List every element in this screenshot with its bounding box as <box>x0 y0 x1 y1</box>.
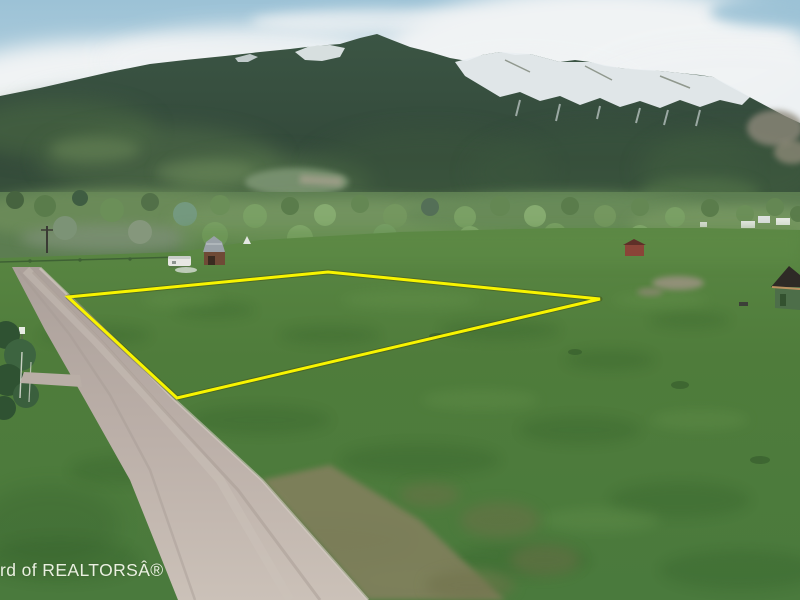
aerial-property-photo: rd of REALTORSÂ® <box>0 0 800 600</box>
distant-pasture <box>180 228 800 264</box>
boat-tarp <box>175 267 197 273</box>
small-trailer <box>739 302 748 306</box>
photo-canvas <box>0 0 800 600</box>
